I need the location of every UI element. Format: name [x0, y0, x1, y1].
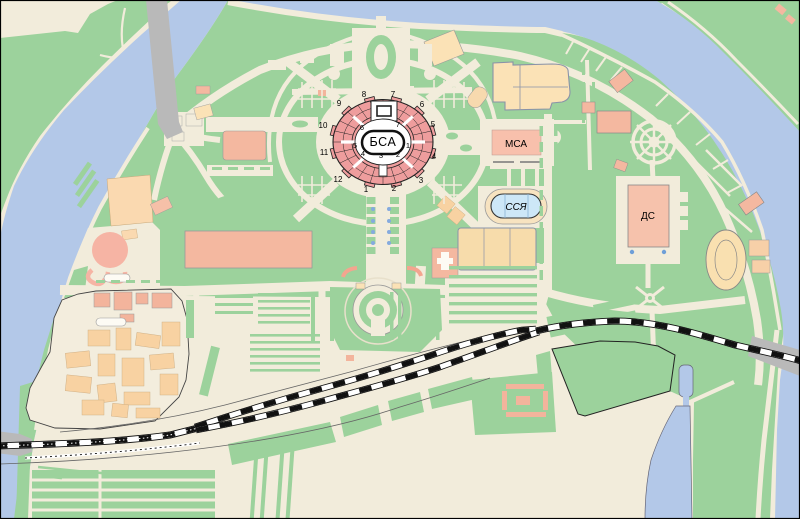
svg-text:5: 5 [353, 141, 357, 150]
svg-text:1: 1 [406, 141, 410, 150]
svg-text:7: 7 [396, 120, 400, 129]
svg-text:МСА: МСА [505, 139, 527, 150]
svg-text:ДС: ДС [641, 211, 655, 222]
svg-text:6: 6 [420, 100, 425, 109]
svg-text:8: 8 [362, 90, 367, 99]
svg-text:ССЯ: ССЯ [505, 202, 526, 213]
svg-text:5: 5 [431, 120, 436, 129]
svg-text:9: 9 [337, 99, 342, 108]
svg-text:1: 1 [364, 185, 369, 194]
svg-text:4: 4 [361, 149, 365, 158]
svg-text:7: 7 [391, 90, 396, 99]
svg-text:11: 11 [320, 148, 329, 157]
svg-text:12: 12 [334, 175, 343, 184]
svg-text:2: 2 [392, 184, 397, 193]
svg-text:10: 10 [319, 121, 328, 130]
svg-text:БСА: БСА [370, 135, 397, 149]
svg-text:6: 6 [360, 123, 364, 132]
svg-text:3: 3 [419, 176, 424, 185]
svg-text:3: 3 [379, 151, 383, 160]
svg-text:2: 2 [396, 150, 400, 159]
svg-text:4: 4 [432, 152, 437, 161]
